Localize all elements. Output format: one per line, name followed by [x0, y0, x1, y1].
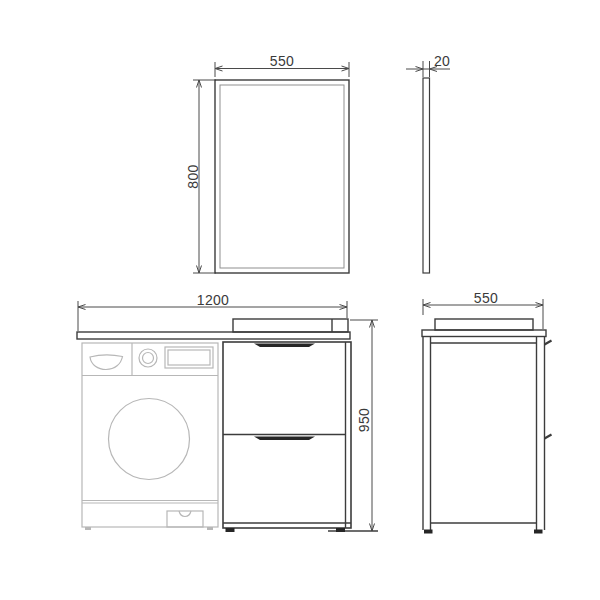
vanity-height-dimension: 950 [350, 320, 378, 531]
washer-foot-left [85, 527, 91, 530]
filter-door [167, 511, 203, 527]
washing-machine-body [82, 343, 218, 527]
vanity-height-label: 950 [356, 408, 372, 432]
mirror-thickness-label: 20 [434, 53, 450, 69]
mirror-front-view: 550 800 [185, 53, 350, 274]
mirror-side-view: 20 [406, 53, 450, 273]
handle-profile-bottom [545, 435, 552, 439]
vanity-width-label: 1200 [197, 292, 229, 308]
vanity-depth-dimension: 550 [423, 290, 543, 330]
program-knob-icon [139, 349, 157, 367]
mirror-width-dimension: 550 [215, 53, 349, 78]
vanity-side-view: 550 [422, 290, 552, 534]
washer-door-icon [109, 399, 190, 480]
washer-foot-right [207, 527, 213, 530]
countertop-front [77, 319, 350, 339]
washing-machine [82, 343, 218, 530]
vanity-depth-label: 550 [474, 290, 498, 306]
drawing-canvas: 550 800 20 [0, 0, 600, 600]
mirror-outer-frame [215, 80, 349, 273]
basin-rim-front [233, 319, 348, 332]
drawer-cabinet-front [223, 342, 351, 532]
cabinet-foot-right [336, 528, 345, 532]
drawer-handle-top [254, 344, 315, 348]
mirror-thickness-dimension: 20 [406, 53, 450, 77]
program-knob-inner [143, 353, 154, 364]
side-foot-back [534, 530, 543, 534]
mirror-side-panel [423, 78, 430, 273]
countertop-side [422, 330, 546, 337]
mirror-width-label: 550 [270, 53, 294, 69]
side-foot-front [424, 530, 433, 534]
mirror-height-dimension: 800 [185, 80, 217, 273]
mirror-height-label: 800 [185, 164, 201, 188]
cabinet-foot-left [226, 528, 235, 532]
display-panel-inner [168, 350, 210, 365]
cabinet-side-profile [422, 319, 552, 534]
vanity-front-view: 1200 950 [77, 292, 378, 533]
basin-rim-side [435, 319, 533, 330]
vanity-width-dimension: 1200 [78, 292, 347, 332]
mirror-inner-frame [220, 85, 344, 268]
handle-profile-top [545, 341, 552, 345]
filter-door-notch [179, 511, 191, 517]
technical-drawing: 550 800 20 [0, 0, 600, 600]
drawer-handle-bottom [254, 437, 315, 441]
detergent-drawer-handle [90, 355, 123, 369]
